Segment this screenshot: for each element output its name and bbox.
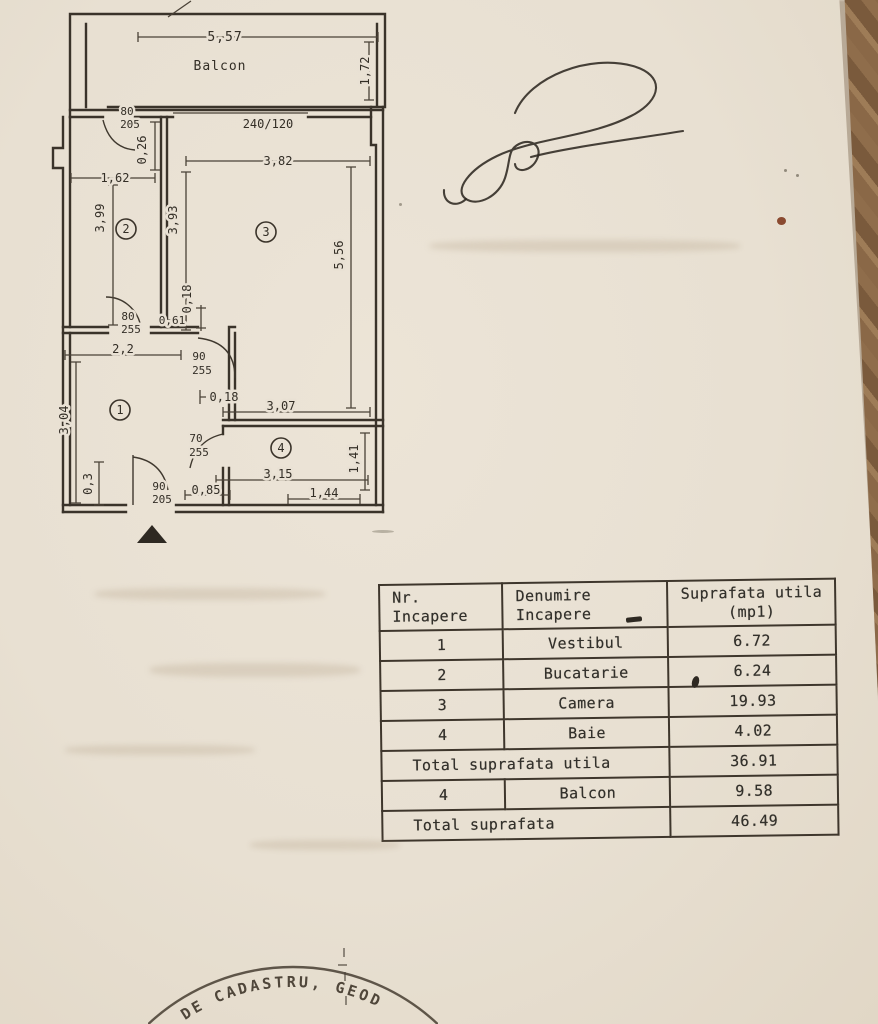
dim-offset-c: 0,61 [159, 314, 186, 327]
dim-wall-offset: 0,26 [135, 136, 149, 165]
balcony-label: Balcon [194, 59, 247, 74]
ghost-smudge [250, 840, 400, 850]
header-suprafata-utila: Suprafata utila(mp1) [667, 579, 835, 627]
dim-camera-left-height: 3,93 [166, 206, 180, 235]
ghost-smudge [95, 588, 325, 600]
room-number-2: 2 [122, 222, 129, 236]
pencil-mark [399, 203, 402, 206]
dim-bath-door-offset: 0,85 [192, 483, 221, 497]
door-bath-width: 70 [189, 432, 202, 445]
pencil-mark [796, 174, 799, 177]
pencil-mark [784, 169, 787, 172]
signature [415, 38, 715, 218]
dim-camera-right-height: 5,56 [332, 241, 346, 270]
door-camera-height: 255 [192, 364, 212, 377]
cell-area: 4.02 [669, 715, 837, 747]
cell-nr: 2 [380, 659, 504, 691]
cell-area: 19.93 [669, 685, 837, 717]
dim-entry-offset: 0,3 [81, 473, 95, 495]
dim-hall-height: 3,04 [57, 406, 71, 435]
fold-dash [345, 996, 347, 1005]
table-total-row: Total suprafata 46.49 [382, 805, 838, 841]
dim-offset-b: 0,18 [210, 390, 239, 404]
door-kitchen-width: 80 [120, 105, 133, 118]
ghost-smudge [65, 745, 255, 755]
pencil-mark [372, 530, 394, 533]
round-stamp: DE CADASTRU, GEOD [148, 934, 438, 1024]
dim-kitchen-width: 1,62 [101, 171, 130, 185]
door-entrance-height: 205 [152, 493, 172, 506]
door-bath-height: 255 [189, 446, 209, 459]
total-label: Total suprafata [382, 807, 671, 841]
room-number-1: 1 [116, 403, 123, 417]
dim-hall-bottom-width: 3,07 [267, 399, 296, 413]
cell-name: Camera [504, 687, 669, 719]
dim-offset-a: 0,18 [180, 285, 194, 314]
door-kitchen-height: 205 [120, 118, 140, 131]
room-number-4: 4 [277, 441, 284, 455]
door-kitchen-hall-width: 80 [121, 310, 134, 323]
total-utila-area: 36.91 [670, 745, 838, 777]
fold-dash [343, 948, 345, 957]
floor-plan: 5,57 Balcon 1,72 80 205 240/120 0,26 1,6… [38, 0, 410, 560]
total-utila-label: Total suprafata utila [381, 747, 670, 781]
red-speck [777, 217, 786, 225]
cell-name: Bucatarie [503, 657, 668, 689]
door-camera-width: 90 [192, 350, 205, 363]
dim-bath-width: 3,15 [264, 467, 293, 481]
cell-name: Vestibul [503, 627, 668, 659]
stamp-text: DE CADASTRU, GEOD [178, 973, 386, 1023]
fold-dash [338, 964, 347, 966]
door-kitchen-hall-height: 255 [121, 323, 141, 336]
room-number-3: 3 [262, 225, 269, 239]
table-header-row: Nr.Incapere DenumireIncapere Suprafata u… [379, 579, 836, 631]
dim-balcony-depth: 1,72 [358, 57, 372, 86]
area-table: Nr.Incapere DenumireIncapere Suprafata u… [378, 578, 840, 842]
scanned-cadastral-document: { "plan": { "balcony_label": "Balcon", "… [0, 0, 878, 1024]
cell-nr: 3 [380, 689, 504, 721]
dim-camera-width: 3,82 [264, 154, 293, 168]
total-area: 46.49 [671, 805, 839, 837]
ghost-smudge [430, 240, 740, 252]
header-nr-incapere: Nr.Incapere [379, 583, 503, 631]
plan-labels: 5,57 Balcon 1,72 80 205 240/120 0,26 1,6… [57, 30, 372, 506]
cell-nr: 4 [381, 719, 505, 751]
dim-kitchen-height: 3,99 [93, 204, 107, 233]
dim-hall-width: 2,2 [112, 342, 134, 356]
door-entrance-width: 90 [152, 480, 165, 493]
cell-area: 6.72 [668, 625, 836, 657]
cell-name: Baie [504, 717, 669, 749]
cell-nr: 4 [382, 779, 506, 811]
window-camera-label: 240/120 [243, 117, 294, 131]
cell-area: 9.58 [670, 775, 838, 807]
ghost-smudge [150, 663, 360, 677]
dim-bath-height: 1,41 [347, 445, 361, 474]
fold-dash [344, 972, 346, 981]
dim-balcony-width: 5,57 [207, 30, 242, 45]
header-denumire-incapere: DenumireIncapere [502, 581, 668, 629]
dim-bath-window-width: 1,44 [310, 486, 339, 500]
cell-name: Balcon [505, 777, 670, 809]
cell-nr: 1 [380, 629, 504, 661]
entrance-arrow [137, 525, 167, 543]
